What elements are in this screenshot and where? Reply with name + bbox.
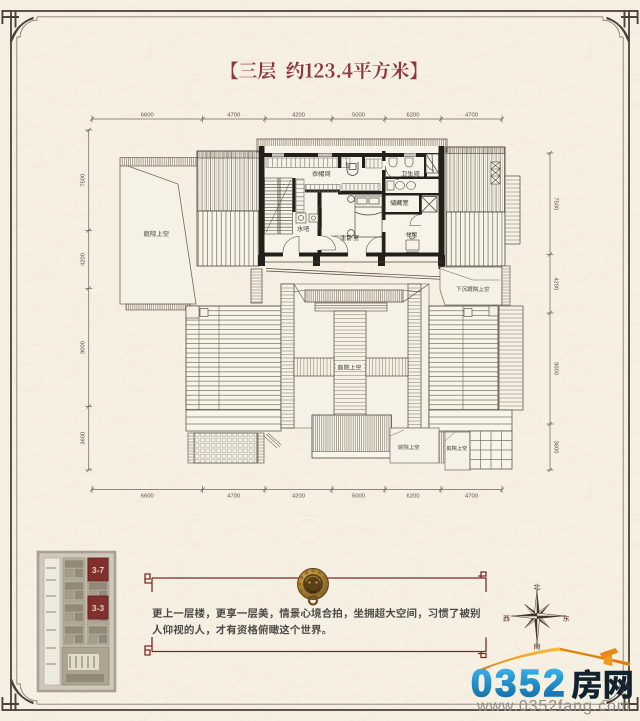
svg-text:4700: 4700 (227, 494, 240, 500)
svg-text:6600: 6600 (141, 113, 154, 119)
svg-text:4200: 4200 (292, 494, 305, 500)
svg-text:5000: 5000 (352, 113, 365, 119)
svg-text:3-3: 3-3 (92, 603, 105, 613)
svg-text:4200: 4200 (292, 113, 305, 119)
svg-text:4200: 4200 (553, 277, 559, 290)
svg-text:5000: 5000 (352, 494, 365, 500)
svg-text:3600: 3600 (81, 432, 87, 445)
svg-text:6600: 6600 (141, 494, 154, 500)
svg-text:www.0352fang.com: www.0352fang.com (476, 698, 631, 715)
svg-text:7500: 7500 (81, 174, 87, 187)
svg-text:9000: 9000 (553, 362, 559, 375)
svg-text:7500: 7500 (553, 197, 559, 210)
svg-text:3600: 3600 (553, 441, 559, 454)
svg-text:4700: 4700 (465, 113, 478, 119)
svg-text:6200: 6200 (407, 494, 420, 500)
svg-text:3-7: 3-7 (92, 565, 105, 575)
svg-text:4700: 4700 (465, 494, 478, 500)
svg-text:4200: 4200 (81, 253, 87, 266)
svg-text:4700: 4700 (227, 113, 240, 119)
svg-text:6200: 6200 (407, 113, 420, 119)
svg-text:9000: 9000 (81, 341, 87, 354)
